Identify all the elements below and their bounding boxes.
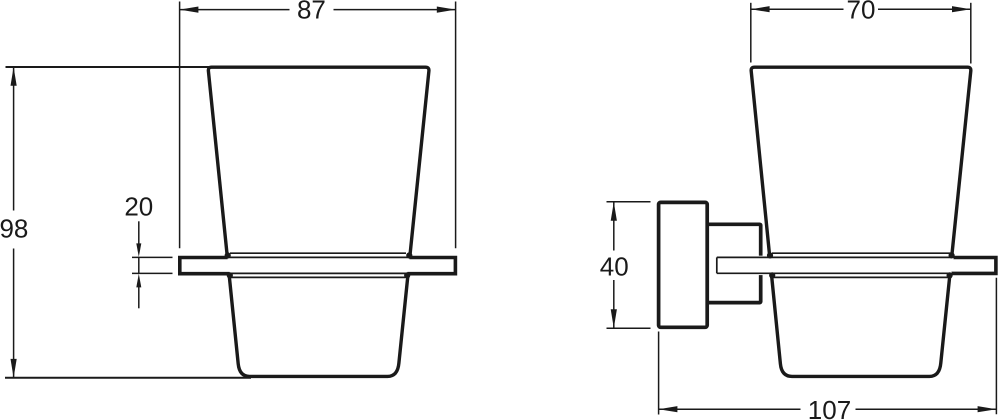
svg-text:70: 70 <box>847 0 876 24</box>
svg-text:20: 20 <box>124 191 153 221</box>
svg-text:98: 98 <box>0 214 28 244</box>
svg-text:40: 40 <box>600 252 629 282</box>
svg-text:87: 87 <box>297 0 326 24</box>
svg-text:107: 107 <box>808 395 851 420</box>
